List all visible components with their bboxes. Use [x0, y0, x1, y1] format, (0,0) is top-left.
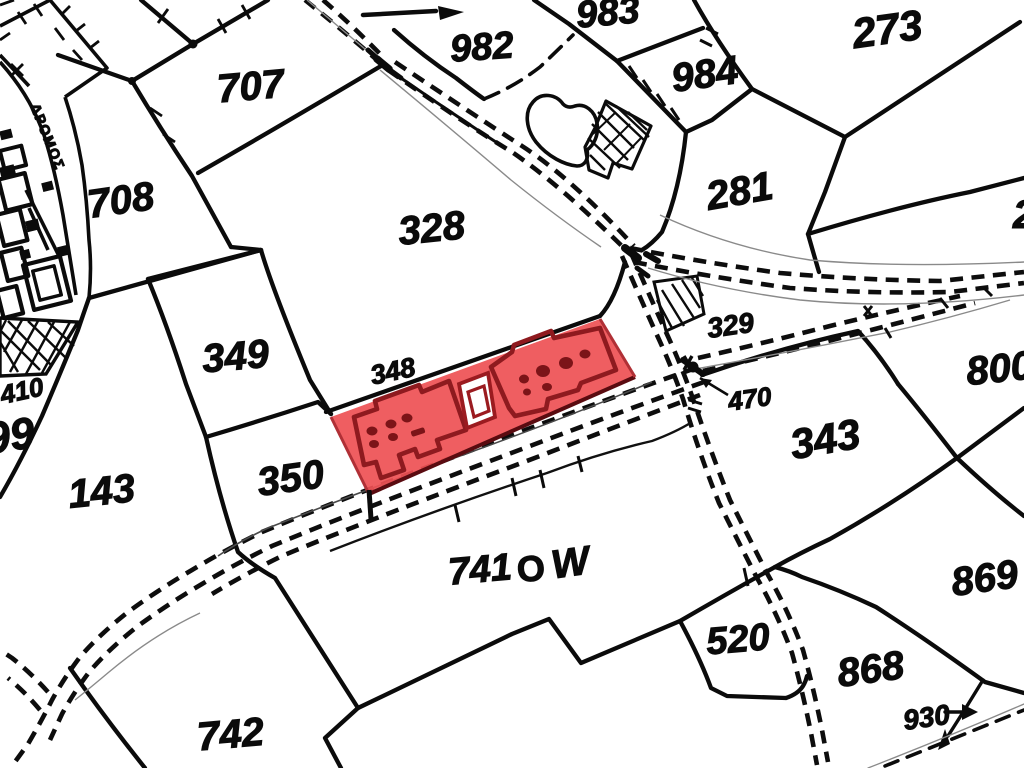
svg-text:800: 800: [964, 343, 1024, 394]
svg-text:741: 741: [447, 546, 514, 593]
svg-text:520: 520: [705, 616, 772, 663]
svg-text:470: 470: [725, 381, 774, 417]
svg-text:143: 143: [66, 466, 137, 517]
svg-text:742: 742: [195, 710, 265, 760]
svg-text:982: 982: [449, 24, 515, 70]
svg-text:328: 328: [396, 203, 468, 254]
svg-text:707: 707: [215, 62, 287, 112]
svg-text:984: 984: [669, 48, 741, 101]
svg-text:983: 983: [574, 0, 641, 37]
svg-text:708: 708: [85, 174, 158, 227]
svg-text:329: 329: [705, 307, 756, 344]
svg-text:273: 273: [848, 1, 925, 57]
svg-text:930: 930: [901, 699, 952, 736]
svg-text:868: 868: [835, 643, 908, 696]
svg-text:O: O: [515, 547, 546, 590]
svg-text:2: 2: [1012, 193, 1024, 237]
svg-text:350: 350: [255, 452, 327, 505]
svg-text:869: 869: [949, 552, 1022, 605]
svg-text:349: 349: [200, 332, 271, 382]
